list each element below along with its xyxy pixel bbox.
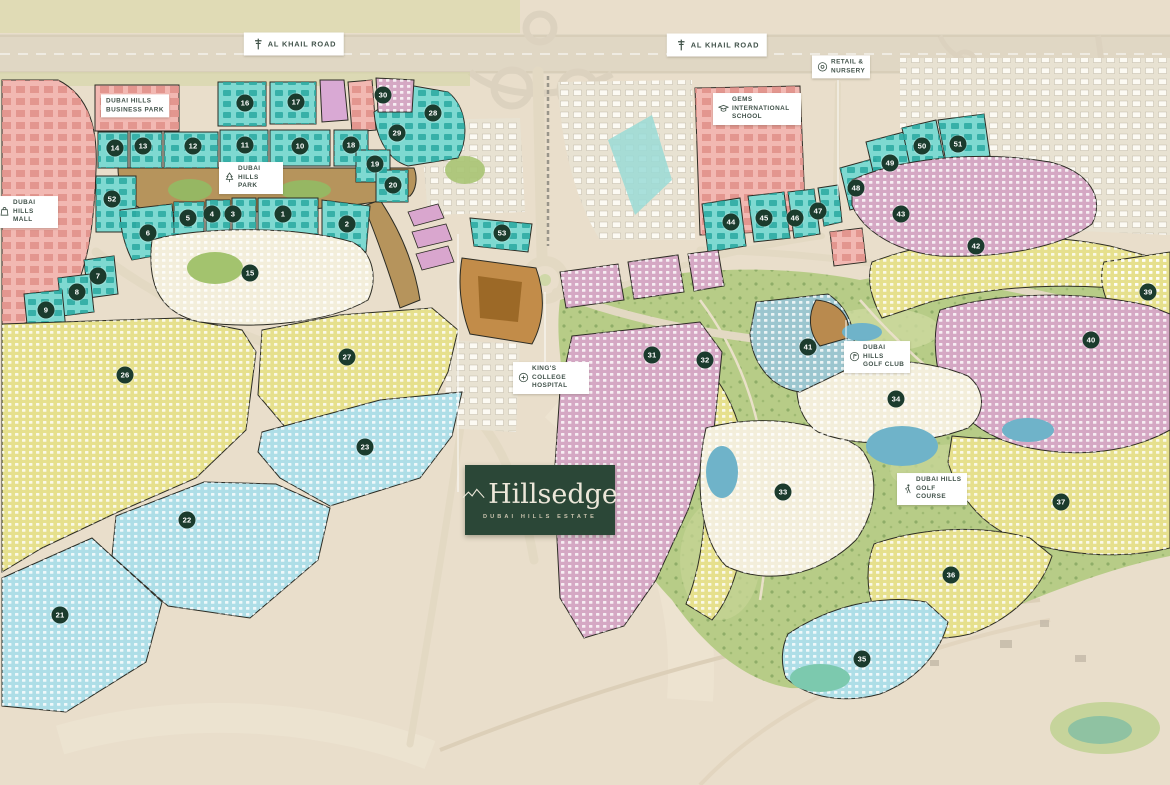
hillsedge-logo-card: Hillsedge DUBAI HILLS ESTATE bbox=[465, 465, 615, 535]
label-dubai-hills-golf-club: DUBAI HILLS GOLF CLUB bbox=[844, 341, 910, 373]
plot-marker-39[interactable]: 39 bbox=[1140, 284, 1157, 301]
plot-marker-40[interactable]: 40 bbox=[1083, 332, 1100, 349]
plot-marker-12[interactable]: 12 bbox=[185, 138, 202, 155]
plot-marker-9[interactable]: 9 bbox=[38, 302, 55, 319]
medical-cross-icon bbox=[518, 372, 529, 383]
plot-marker-49[interactable]: 49 bbox=[882, 155, 899, 172]
brand-name: Hillsedge bbox=[488, 481, 618, 508]
plot-marker-52[interactable]: 52 bbox=[104, 191, 121, 208]
label-al-khail-road-east: AL KHAIL ROAD bbox=[667, 34, 767, 57]
shopping-bag-icon bbox=[0, 206, 10, 217]
plot-marker-47[interactable]: 47 bbox=[810, 203, 827, 220]
plot-marker-45[interactable]: 45 bbox=[756, 210, 773, 227]
label-text: DUBAI HILLS GOLF COURSE bbox=[916, 476, 962, 502]
label-dubai-hills-business-park: DUBAI HILLS BUSINESS PARK bbox=[101, 94, 169, 117]
plot-marker-17[interactable]: 17 bbox=[288, 94, 305, 111]
plot-marker-1[interactable]: 1 bbox=[275, 206, 292, 223]
mountain-icon bbox=[462, 488, 486, 500]
plot-marker-27[interactable]: 27 bbox=[339, 349, 356, 366]
golfer-icon bbox=[902, 483, 913, 494]
plot-marker-33[interactable]: 33 bbox=[775, 484, 792, 501]
plot-marker-51[interactable]: 51 bbox=[950, 136, 967, 153]
label-retail-nursery: RETAIL & NURSERY bbox=[812, 55, 870, 78]
plot-marker-29[interactable]: 29 bbox=[389, 125, 406, 142]
plot-marker-34[interactable]: 34 bbox=[888, 391, 905, 408]
plot-marker-7[interactable]: 7 bbox=[90, 268, 107, 285]
plot-marker-41[interactable]: 41 bbox=[800, 339, 817, 356]
plot-marker-42[interactable]: 42 bbox=[968, 238, 985, 255]
graduation-cap-icon bbox=[718, 103, 729, 114]
plot-marker-20[interactable]: 20 bbox=[385, 177, 402, 194]
plot-marker-31[interactable]: 31 bbox=[644, 347, 661, 364]
golf-flag-icon bbox=[849, 351, 860, 362]
plot-marker-35[interactable]: 35 bbox=[854, 651, 871, 668]
plot-marker-36[interactable]: 36 bbox=[943, 567, 960, 584]
label-text: RETAIL & NURSERY bbox=[831, 58, 865, 75]
plot-marker-48[interactable]: 48 bbox=[848, 180, 865, 197]
plot-marker-4[interactable]: 4 bbox=[204, 206, 221, 223]
plot-marker-3[interactable]: 3 bbox=[225, 206, 242, 223]
plot-marker-23[interactable]: 23 bbox=[357, 439, 374, 456]
plot-marker-30[interactable]: 30 bbox=[375, 87, 392, 104]
plot-marker-6[interactable]: 6 bbox=[140, 225, 157, 242]
plot-marker-2[interactable]: 2 bbox=[339, 216, 356, 233]
road-sign-icon bbox=[252, 38, 265, 51]
plot-marker-8[interactable]: 8 bbox=[69, 284, 86, 301]
plot-marker-28[interactable]: 28 bbox=[425, 105, 442, 122]
plot-marker-21[interactable]: 21 bbox=[52, 607, 69, 624]
plot-marker-53[interactable]: 53 bbox=[494, 225, 511, 242]
tree-icon bbox=[224, 172, 235, 183]
plot-marker-37[interactable]: 37 bbox=[1053, 494, 1070, 511]
label-al-khail-road-west: AL KHAIL ROAD bbox=[244, 33, 344, 56]
label-text: DUBAI HILLS PARK bbox=[238, 165, 278, 191]
brand-subtitle: DUBAI HILLS ESTATE bbox=[483, 514, 597, 520]
label-text: GEMS INTERNATIONAL SCHOOL bbox=[732, 96, 796, 122]
plot-marker-26[interactable]: 26 bbox=[117, 367, 134, 384]
plot-marker-15[interactable]: 15 bbox=[242, 265, 259, 282]
plot-marker-32[interactable]: 32 bbox=[697, 352, 714, 369]
label-dubai-hills-park: DUBAI HILLS PARK bbox=[219, 162, 283, 194]
plot-marker-44[interactable]: 44 bbox=[723, 214, 740, 231]
label-text: DUBAI HILLS BUSINESS PARK bbox=[106, 97, 164, 114]
retail-icon bbox=[817, 62, 828, 73]
label-text: AL KHAIL ROAD bbox=[691, 40, 759, 50]
label-gems-international-school: GEMS INTERNATIONAL SCHOOL bbox=[713, 93, 801, 125]
plot-marker-16[interactable]: 16 bbox=[237, 95, 254, 112]
label-dubai-hills-golf-course: DUBAI HILLS GOLF COURSE bbox=[897, 473, 967, 505]
label-dubai-hills-mall: DUBAI HILLS MALL bbox=[0, 196, 58, 228]
plot-marker-22[interactable]: 22 bbox=[179, 512, 196, 529]
road-sign-icon bbox=[675, 39, 688, 52]
plot-marker-19[interactable]: 19 bbox=[367, 156, 384, 173]
masterplan-map: 1234567891011121314151617181920212223262… bbox=[0, 0, 1170, 785]
label-text: DUBAI HILLS GOLF CLUB bbox=[863, 344, 905, 370]
label-text: AL KHAIL ROAD bbox=[268, 39, 336, 49]
label-text: DUBAI HILLS MALL bbox=[13, 199, 53, 225]
plot-marker-10[interactable]: 10 bbox=[292, 138, 309, 155]
plot-marker-43[interactable]: 43 bbox=[893, 206, 910, 223]
plot-marker-50[interactable]: 50 bbox=[914, 138, 931, 155]
plot-marker-14[interactable]: 14 bbox=[107, 140, 124, 157]
label-kings-college-hospital: KING'S COLLEGE HOSPITAL bbox=[513, 362, 589, 394]
plot-marker-11[interactable]: 11 bbox=[237, 137, 254, 154]
plot-marker-5[interactable]: 5 bbox=[180, 210, 197, 227]
plot-marker-18[interactable]: 18 bbox=[343, 137, 360, 154]
plot-marker-13[interactable]: 13 bbox=[135, 138, 152, 155]
plot-marker-46[interactable]: 46 bbox=[787, 210, 804, 227]
label-text: KING'S COLLEGE HOSPITAL bbox=[532, 365, 584, 391]
